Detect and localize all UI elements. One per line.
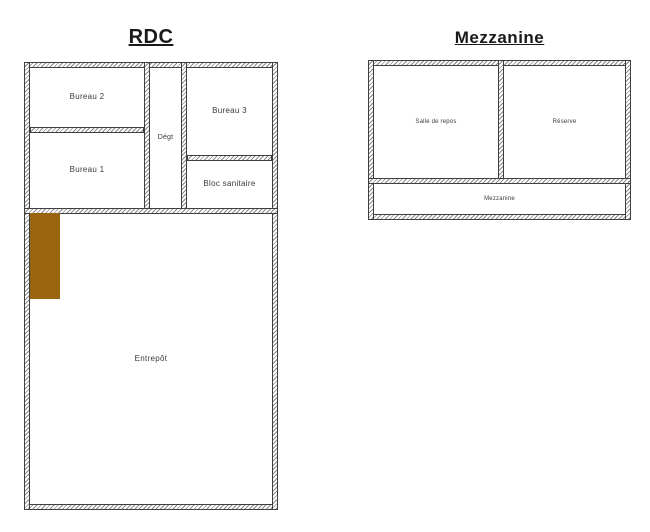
room-mezzanine-strip-label: Mezzanine [484, 196, 515, 203]
room-mezzanine-strip: Mezzanine [374, 184, 625, 214]
room-degt: Dégt [150, 68, 181, 208]
room-reserve: Réserve [504, 66, 625, 178]
rdc-outer-wall-bottom [24, 504, 278, 510]
room-bureau3: Bureau 3 [187, 68, 272, 155]
room-entrepot: Entrepôt [30, 214, 272, 504]
room-bloc-sanitaire: Bloc sanitaire [187, 161, 272, 208]
room-bureau3-label: Bureau 3 [212, 107, 247, 116]
room-bureau1-label: Bureau 1 [70, 166, 105, 175]
mezz-outer-wall-bottom [368, 214, 631, 220]
room-bureau2-label: Bureau 2 [70, 93, 105, 102]
mezzanine-plan: Salle de repos Réserve Mezzanine [368, 60, 631, 220]
mezz-outer-wall-right [625, 60, 631, 220]
room-bureau1: Bureau 1 [30, 133, 144, 208]
room-entrepot-label: Entrepôt [135, 355, 168, 364]
room-salle-de-repos-label: Salle de repos [415, 119, 456, 126]
room-bureau2: Bureau 2 [30, 68, 144, 127]
room-reserve-label: Réserve [553, 119, 577, 126]
room-bloc-sanitaire-label: Bloc sanitaire [203, 180, 255, 189]
floorplan-canvas: RDC Mezzanine Bureau 2 Bureau 1 Dégt Bur… [0, 0, 650, 532]
room-salle-de-repos: Salle de repos [374, 66, 498, 178]
rdc-title: RDC [24, 26, 278, 49]
mezzanine-title: Mezzanine [368, 28, 631, 48]
room-degt-label: Dégt [158, 134, 174, 142]
rdc-plan: Bureau 2 Bureau 1 Dégt Bureau 3 Bloc san… [24, 62, 278, 510]
rdc-outer-wall-right [272, 62, 278, 510]
